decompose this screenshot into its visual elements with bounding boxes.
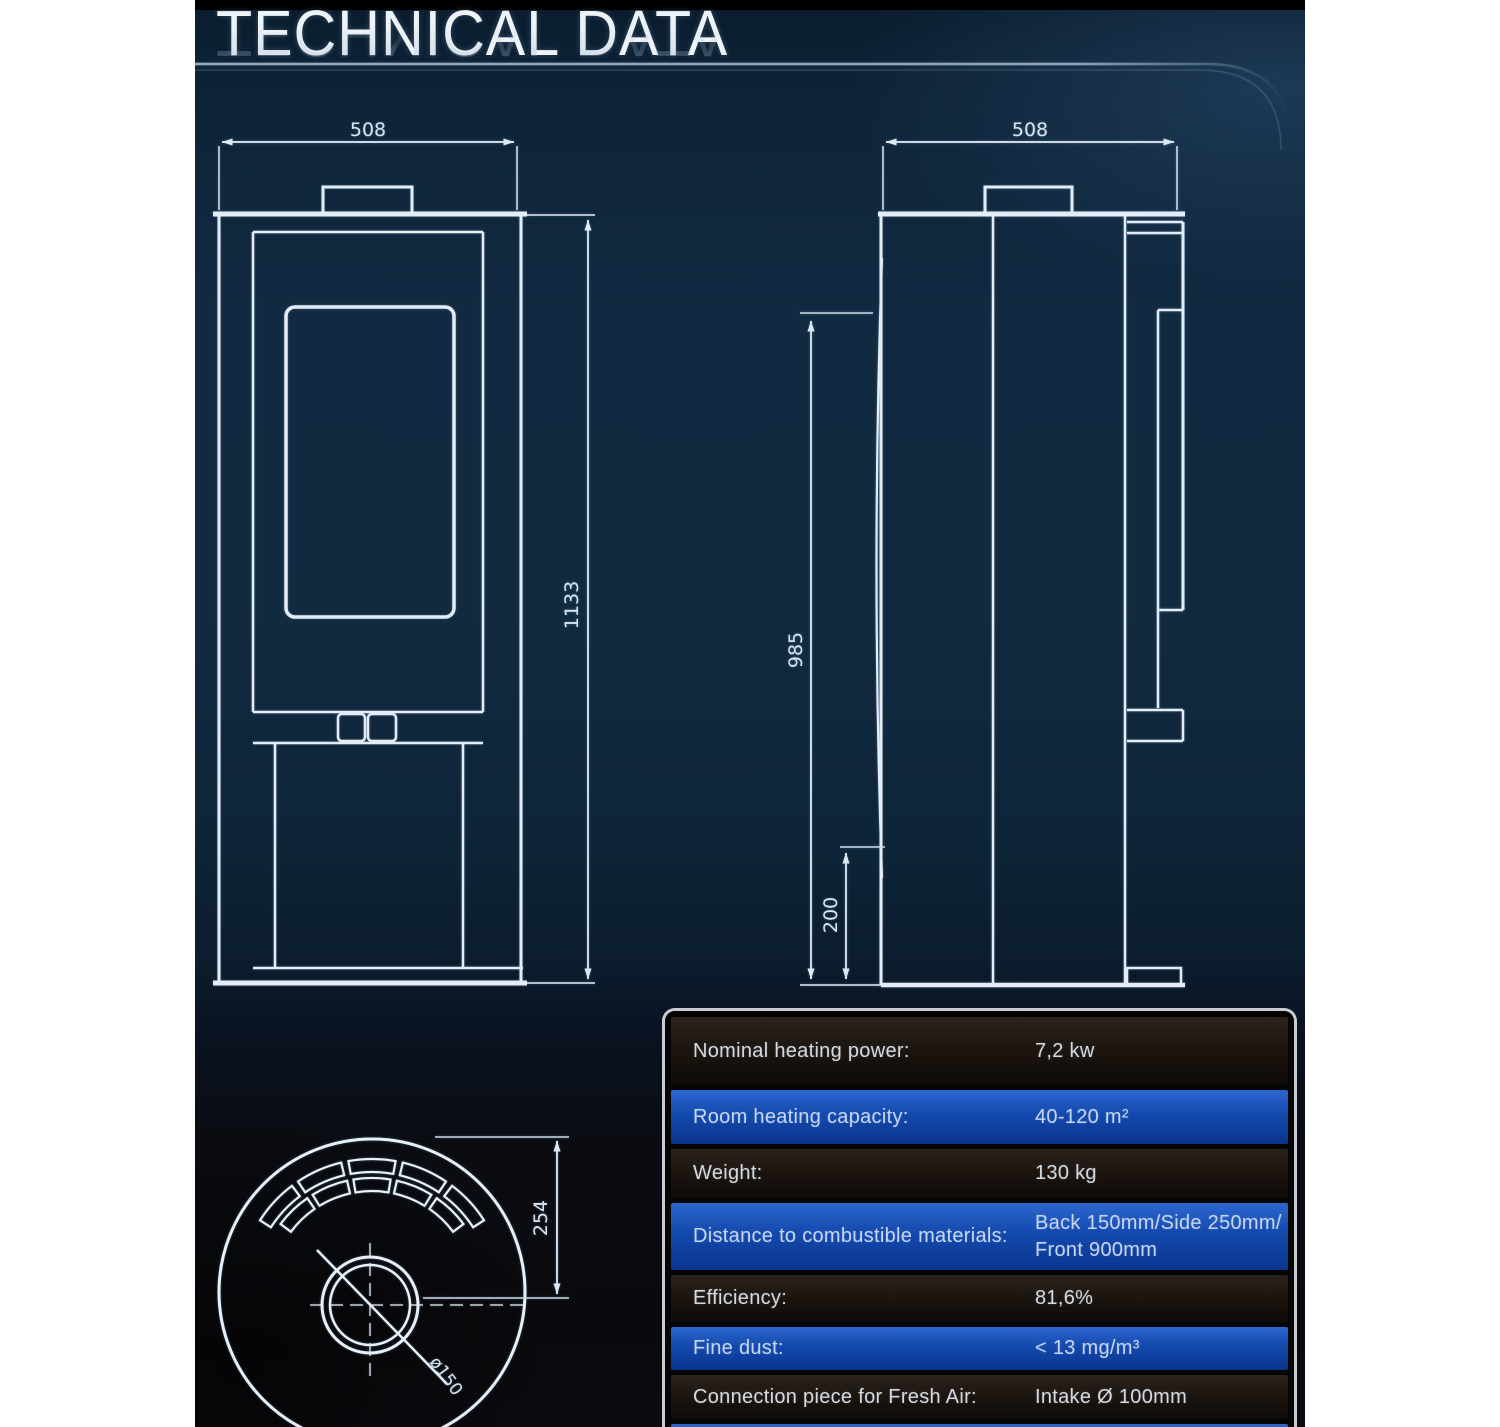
spec-row: Efficiency:81,6% <box>671 1275 1288 1322</box>
dimension-label-side-width: 508 <box>1012 119 1048 141</box>
vent-slot <box>400 1163 446 1193</box>
spec-value: Back 150mm/Side 250mm/Front 900mm <box>1035 1210 1288 1264</box>
spec-row: Fine dust:< 13 mg/m³ <box>671 1327 1288 1370</box>
spec-value: 130 kg <box>1035 1160 1288 1187</box>
spec-label: Efficiency: <box>671 1287 1035 1310</box>
spec-value: 7,2 kw <box>1035 1038 1288 1065</box>
dimension-label-front-height: 1133 <box>561 581 583 629</box>
spec-label: Weight: <box>671 1162 1035 1185</box>
vent-slot <box>353 1178 390 1192</box>
spec-value: Intake Ø 100mm <box>1035 1384 1288 1411</box>
spec-label: Room heating capacity: <box>671 1106 1035 1129</box>
spec-value: 81,6% <box>1035 1285 1288 1312</box>
vent-slot <box>444 1186 484 1228</box>
vent-slots <box>260 1159 484 1232</box>
spec-row: Nominal heating power:7,2 kw <box>671 1017 1288 1085</box>
side-view-dimensions <box>800 142 1177 979</box>
title-underline-swoosh <box>195 64 1292 168</box>
dimension-label-side-clearance: 200 <box>820 897 842 933</box>
dimension-label-side-height: 985 <box>785 632 807 668</box>
spec-table: Nominal heating power:7,2 kwRoom heating… <box>662 1008 1297 1427</box>
vent-slot <box>348 1159 395 1174</box>
vent-slot <box>429 1198 463 1232</box>
side-view-drawing <box>800 187 1185 985</box>
page-content: TECHNICAL DATA TECHNICAL DATA <box>195 0 1305 1427</box>
spec-row: Distance to combustible materials:Back 1… <box>671 1203 1288 1270</box>
dimension-label-top-depth: 254 <box>530 1200 552 1236</box>
vent-slot <box>281 1198 315 1232</box>
spec-row: Room heating capacity:40-120 m² <box>671 1090 1288 1144</box>
dimension-label-flue-diameter: ø150 <box>425 1353 466 1399</box>
spec-label: Fine dust: <box>671 1337 1035 1360</box>
spec-label: Nominal heating power: <box>671 1040 1035 1063</box>
top-view-drawing <box>219 1139 530 1427</box>
front-view-drawing <box>213 187 595 983</box>
spec-row: Connection piece for Fresh Air:Intake Ø … <box>671 1375 1288 1419</box>
spec-label: Connection piece for Fresh Air: <box>671 1386 1035 1409</box>
spec-label: Distance to combustible materials: <box>671 1225 1035 1248</box>
technical-data-sheet: { "title": "TECHNICAL DATA", "drawings":… <box>0 0 1500 1427</box>
spec-table-rows: Nominal heating power:7,2 kwRoom heating… <box>671 1017 1288 1427</box>
vent-slot <box>298 1163 344 1193</box>
dimension-label-front-width: 508 <box>350 119 386 141</box>
spec-value: 40-120 m² <box>1035 1104 1288 1131</box>
vent-slot <box>260 1186 300 1228</box>
spec-row: Weight:130 kg <box>671 1149 1288 1198</box>
spec-value: < 13 mg/m³ <box>1035 1335 1288 1362</box>
